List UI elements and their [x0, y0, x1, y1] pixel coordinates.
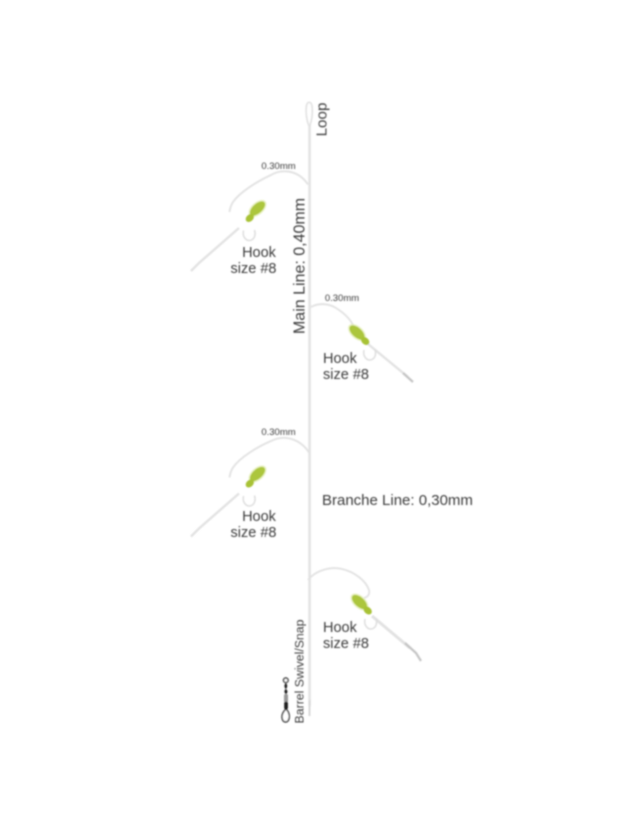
svg-text:Branche Line: 0,30mm: Branche Line: 0,30mm	[322, 492, 473, 509]
svg-text:size #8: size #8	[231, 261, 277, 277]
svg-text:0.30mm: 0.30mm	[261, 161, 295, 172]
svg-text:Loop: Loop	[314, 103, 331, 137]
svg-text:Hook: Hook	[242, 509, 277, 525]
svg-text:Hook: Hook	[323, 351, 358, 367]
svg-text:size #8: size #8	[231, 525, 277, 541]
svg-text:0.30mm: 0.30mm	[325, 293, 359, 304]
svg-text:Hook: Hook	[242, 245, 277, 261]
svg-text:Hook: Hook	[323, 620, 358, 636]
svg-text:size #8: size #8	[323, 367, 369, 383]
svg-text:Barrel Swivel/Snap: Barrel Swivel/Snap	[293, 619, 307, 723]
svg-text:Main Line: 0,40mm: Main Line: 0,40mm	[292, 198, 309, 334]
svg-text:0.30mm: 0.30mm	[261, 427, 295, 438]
svg-text:size #8: size #8	[323, 636, 369, 652]
